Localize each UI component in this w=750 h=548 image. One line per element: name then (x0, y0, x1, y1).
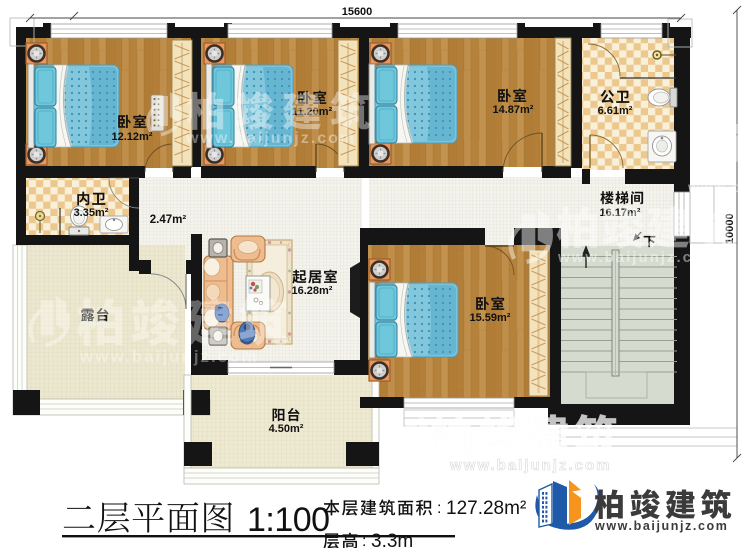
svg-text:16.28m²: 16.28m² (292, 285, 333, 297)
svg-text:12.12m²: 12.12m² (112, 131, 153, 143)
svg-text:1:100: 1:100 (247, 501, 330, 539)
svg-text:4.50m²: 4.50m² (269, 423, 304, 435)
svg-text:15.59m²: 15.59m² (470, 312, 511, 324)
svg-text:15600: 15600 (342, 6, 373, 18)
svg-text::: : (437, 500, 441, 517)
svg-text:3.35m²: 3.35m² (74, 207, 109, 219)
svg-text:www.baijunjz.com: www.baijunjz.com (687, 179, 750, 195)
svg-text:14.87m²: 14.87m² (493, 104, 534, 116)
svg-text:www.baijunjz.com: www.baijunjz.com (449, 457, 611, 474)
svg-text::: : (362, 533, 366, 548)
svg-text:6.61m²: 6.61m² (598, 105, 633, 117)
svg-text:2.47m²: 2.47m² (150, 214, 187, 226)
svg-text:www.baijunjz.com: www.baijunjz.com (594, 519, 728, 533)
svg-text:127.28m²: 127.28m² (446, 498, 526, 519)
svg-text:www.baijunjz.com: www.baijunjz.com (185, 130, 356, 147)
svg-text:www.baijunjz.com: www.baijunjz.com (79, 347, 259, 366)
svg-text:3.3m: 3.3m (371, 531, 413, 548)
svg-text:www.baijunjz.com: www.baijunjz.com (557, 249, 719, 266)
